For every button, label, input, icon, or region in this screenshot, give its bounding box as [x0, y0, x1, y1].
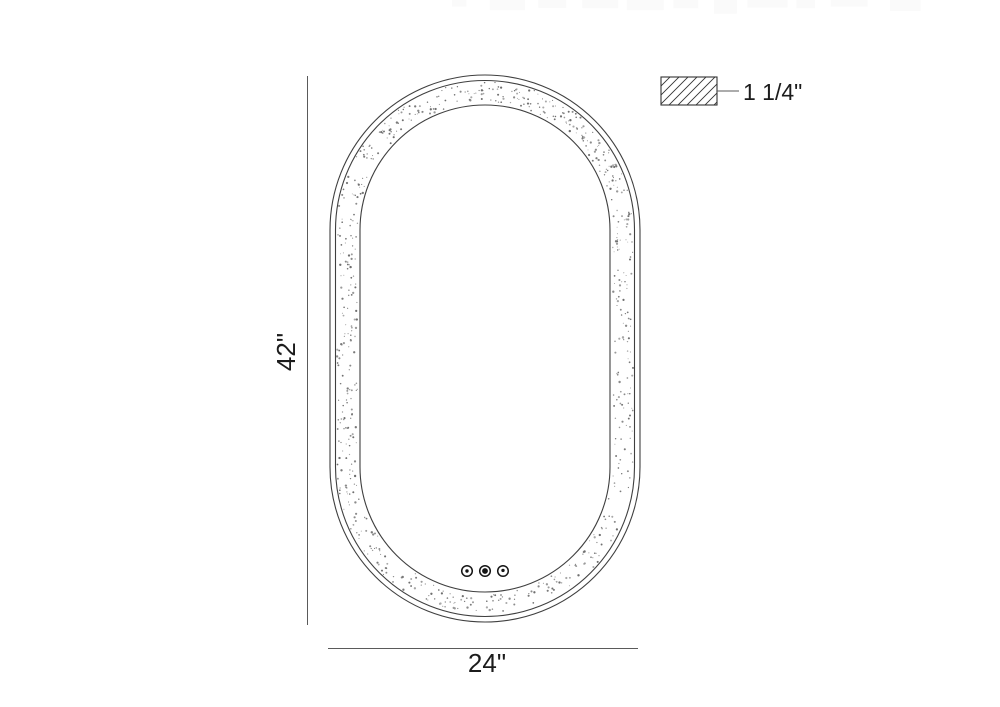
height-dimension: 42" — [271, 76, 308, 625]
mirror-inner-outline — [360, 105, 610, 592]
technical-drawing: 42" 24" 1 1/4" — [0, 0, 1000, 707]
mirror-drawing — [330, 75, 640, 622]
touch-controls — [462, 566, 509, 577]
thickness-label: 1 1/4" — [743, 79, 802, 105]
width-dimension-label: 24" — [468, 648, 506, 678]
touch-control-icon — [480, 566, 491, 577]
mirror-outer-outline — [330, 75, 640, 622]
thickness-section-swatch — [661, 77, 717, 105]
faint-watermark — [452, 0, 921, 14]
width-dimension: 24" — [328, 648, 638, 678]
thickness-callout: 1 1/4" — [661, 77, 802, 105]
height-dimension-label: 42" — [271, 333, 301, 371]
drawing-canvas: 42" 24" 1 1/4" — [0, 0, 1000, 707]
touch-control-icon — [462, 566, 473, 577]
touch-control-icon — [498, 566, 509, 577]
